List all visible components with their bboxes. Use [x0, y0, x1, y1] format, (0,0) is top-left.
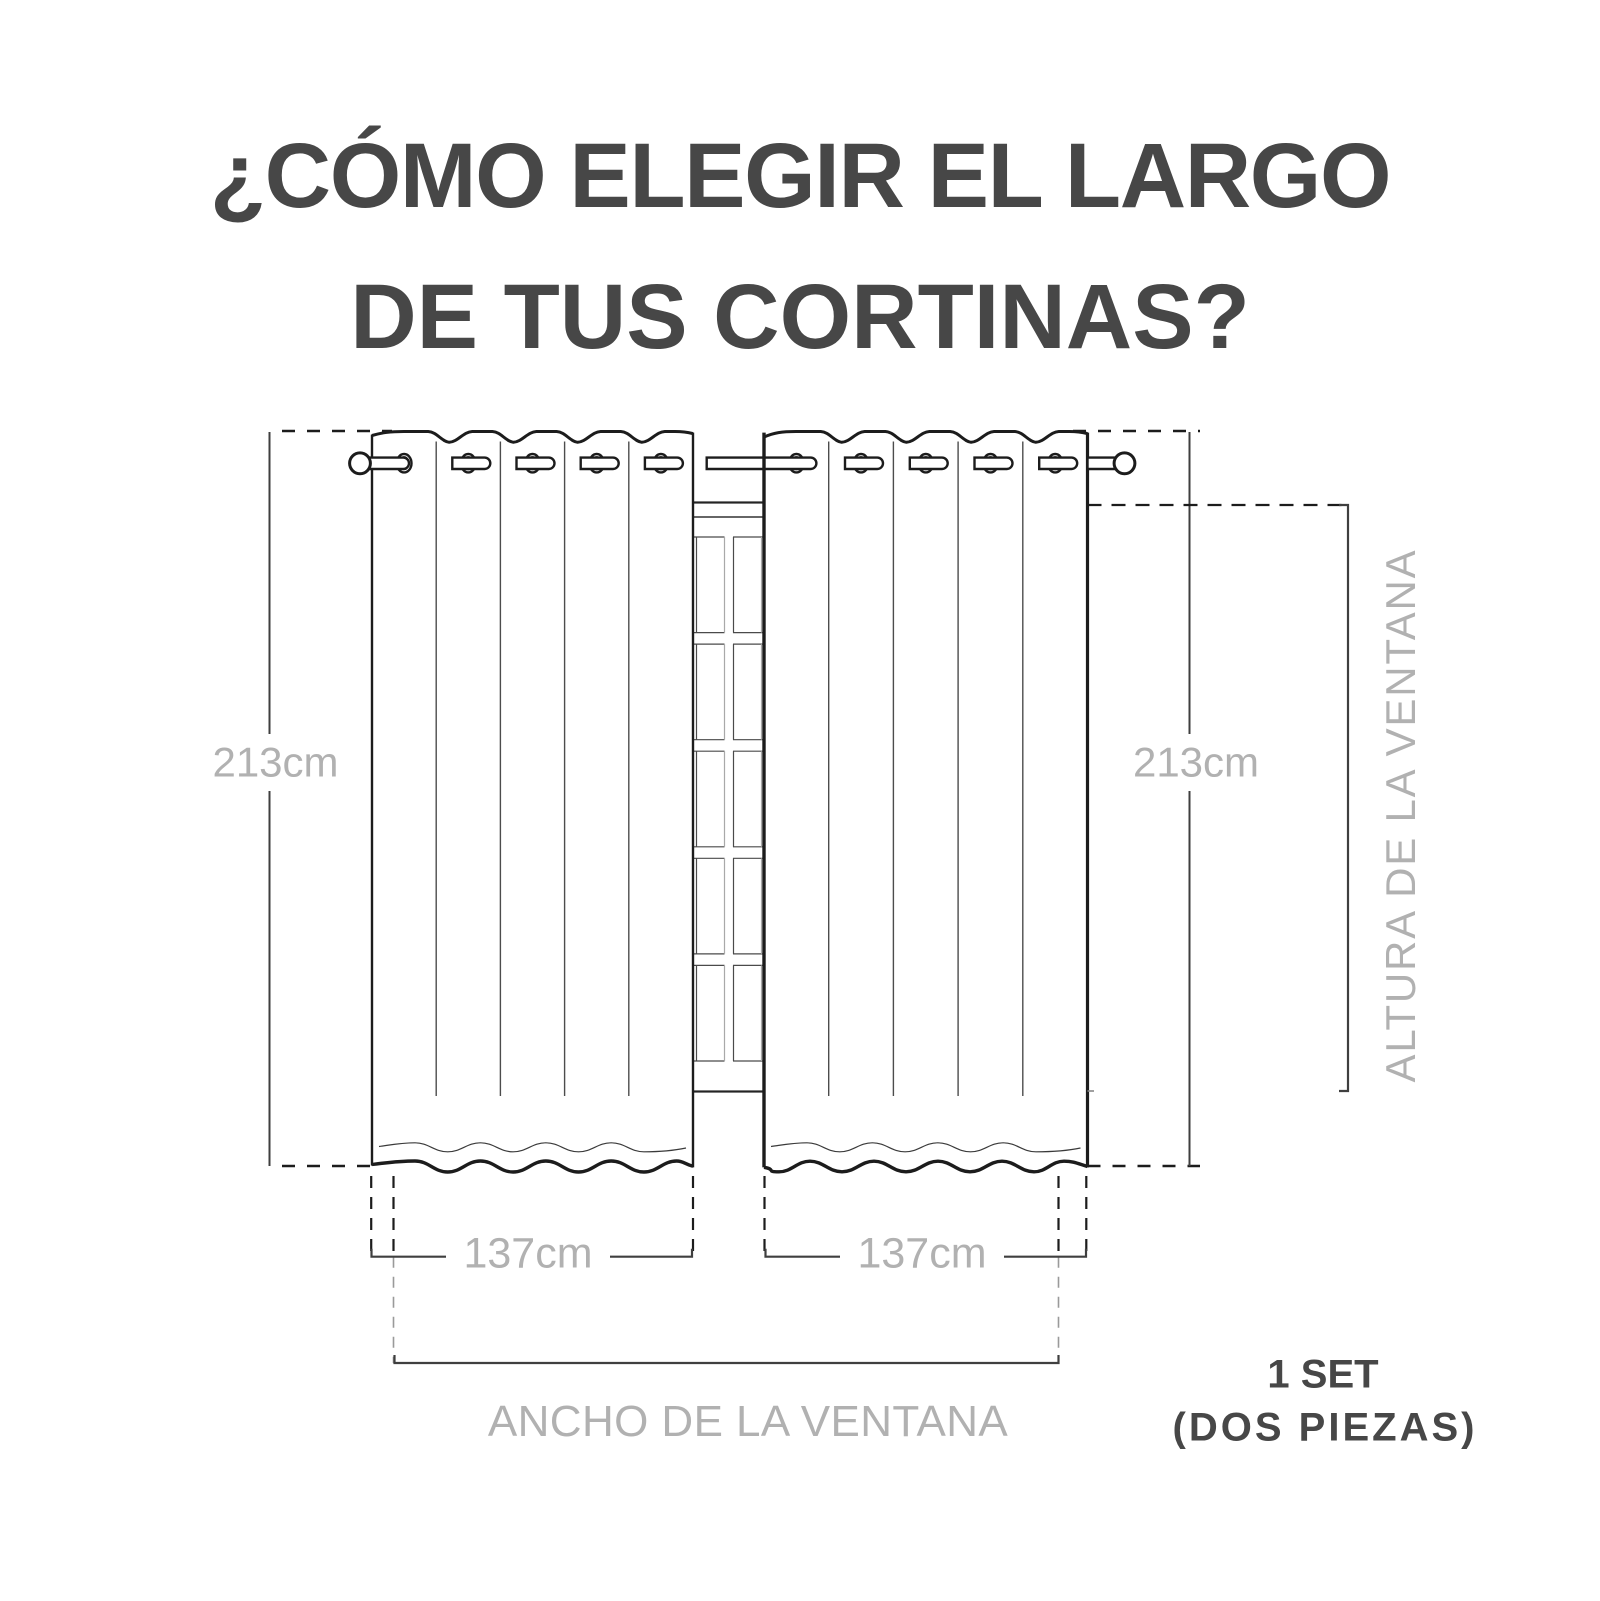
svg-text:1 SET: 1 SET [1267, 1353, 1378, 1397]
svg-text:213cm: 213cm [1133, 739, 1259, 786]
svg-text:ALTURA DE LA VENTANA: ALTURA DE LA VENTANA [1377, 549, 1424, 1083]
svg-text:¿CÓMO ELEGIR EL LARGO: ¿CÓMO ELEGIR EL LARGO [210, 124, 1390, 227]
svg-text:(DOS PIEZAS): (DOS PIEZAS) [1173, 1406, 1478, 1450]
svg-text:213cm: 213cm [212, 739, 338, 786]
svg-text:DE TUS CORTINAS?: DE TUS CORTINAS? [350, 266, 1250, 368]
svg-text:137cm: 137cm [857, 1230, 986, 1278]
svg-text:137cm: 137cm [463, 1230, 592, 1278]
svg-text:ANCHO DE LA VENTANA: ANCHO DE LA VENTANA [488, 1397, 1008, 1446]
